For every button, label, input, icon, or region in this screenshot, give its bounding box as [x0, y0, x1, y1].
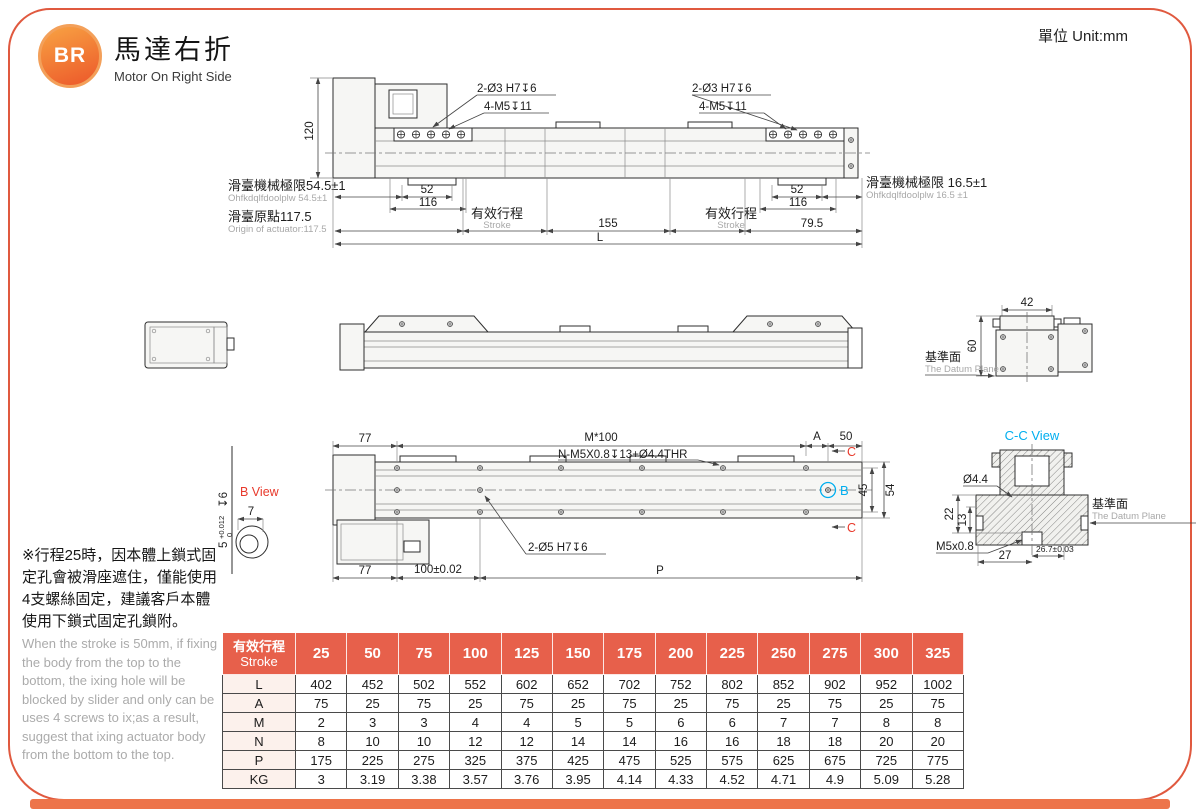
table-cell: 18 [758, 732, 809, 751]
table-cell: 4 [501, 713, 552, 732]
table-cell: 4 [450, 713, 501, 732]
dim-77-bottom: 77 [359, 565, 372, 577]
stroke-col-header: 225 [707, 633, 758, 675]
stroke-col-header: 50 [347, 633, 398, 675]
dim-50: 50 [840, 431, 853, 443]
table-cell: 375 [501, 751, 552, 770]
dim-13: 13 [957, 514, 969, 527]
dim-52-right: 52 [791, 184, 804, 196]
datum-side-zh: 基準面 [925, 349, 961, 364]
dim-L: L [597, 232, 604, 244]
stroke-col-header: 300 [861, 633, 912, 675]
stroke-col-header: 75 [398, 633, 449, 675]
dim-P: P [656, 565, 664, 577]
table-cell: 75 [296, 694, 347, 713]
cc-view-detail: C-C View Ø4.4 22 13 M5x0.8 [936, 428, 1196, 566]
table-cell: 3.57 [450, 770, 501, 789]
stroke-note: ※行程25時，因本體上鎖式固定孔會被滑座遮住，僅能使用4支螺絲固定，建議客戶本體… [22, 545, 220, 765]
table-cell: 5 [604, 713, 655, 732]
datum-cc-en: The Datum Plane [1092, 511, 1166, 522]
table-cell: 402 [296, 675, 347, 694]
table-cell: 8 [296, 732, 347, 751]
dim-5-depth: ↧6 [218, 492, 230, 508]
datasheet-page: BR 馬達右折 Motor On Right Side 單位 Unit:mm [0, 0, 1200, 809]
table-cell: 5 [552, 713, 603, 732]
end-section-view: 42 60 基準面 The Datum Plane [925, 297, 1092, 382]
origin-en: Origin of actuator:117.5 [228, 224, 327, 235]
spec-table: 有效行程 Stroke 2550751001251501752002252502… [222, 632, 964, 789]
stroke-note-en: When the stroke is 50mm, if fixing the b… [22, 635, 220, 765]
datum-side-en: The Datum Plane [925, 364, 999, 375]
table-cell: 952 [861, 675, 912, 694]
dowel-hole-callout: 2-Ø5 H7↧6 [528, 542, 588, 554]
table-cell: 75 [398, 694, 449, 713]
table-cell: 852 [758, 675, 809, 694]
table-cell: 3.19 [347, 770, 398, 789]
stroke-label-left-en: Stroke [483, 220, 510, 231]
table-cell: 3 [398, 713, 449, 732]
table-cell: 175 [296, 751, 347, 770]
table-row-a: A75257525752575257525752575 [223, 694, 964, 713]
table-cell: 18 [809, 732, 860, 751]
stroke-label-right-zh: 有效行程 [705, 206, 757, 221]
hole-callout-left-1: 2-Ø3 H7↧6 [477, 83, 537, 95]
stroke-col-header: 325 [912, 633, 964, 675]
dim-120: 120 [304, 121, 316, 140]
table-cell: 5.28 [912, 770, 964, 789]
dim-M100: M*100 [584, 432, 617, 444]
table-cell: 4.33 [655, 770, 706, 789]
thread-callout: N-M5X0.8↧13+Ø4.4THR [558, 449, 687, 461]
dim-52-left: 52 [421, 184, 434, 196]
table-cell: 3.95 [552, 770, 603, 789]
table-cell: 6 [707, 713, 758, 732]
table-cell: 3 [296, 770, 347, 789]
table-cell: 702 [604, 675, 655, 694]
table-cell: 75 [912, 694, 964, 713]
table-cell: 4.9 [809, 770, 860, 789]
row-label: A [223, 694, 296, 713]
b-view-detail: 7 B View 5 +0.012 0 ↧6 [217, 446, 280, 574]
row-label: M [223, 713, 296, 732]
table-cell: 325 [450, 751, 501, 770]
table-cell: 802 [707, 675, 758, 694]
dim-100: 100±0.02 [414, 564, 462, 576]
b-view-title: B View [240, 485, 280, 499]
hole-callout-left-2: 4-M5↧11 [484, 101, 532, 113]
table-cell: 225 [347, 751, 398, 770]
table-cell: 12 [501, 732, 552, 751]
dim-4-4: Ø4.4 [963, 474, 989, 486]
dim-42: 42 [1021, 297, 1034, 309]
table-row-p: P175225275325375425475525575625675725775 [223, 751, 964, 770]
dim-A: A [813, 431, 821, 443]
table-row-m: M2334455667788 [223, 713, 964, 732]
table-cell: 75 [604, 694, 655, 713]
table-cell: 775 [912, 751, 964, 770]
table-cell: 4.71 [758, 770, 809, 789]
dim-79-5: 79.5 [801, 218, 823, 230]
table-cell: 652 [552, 675, 603, 694]
table-cell: 25 [655, 694, 706, 713]
table-cell: 3 [347, 713, 398, 732]
table-cell: 2 [296, 713, 347, 732]
table-cell: 8 [861, 713, 912, 732]
table-cell: 16 [707, 732, 758, 751]
table-cell: 75 [809, 694, 860, 713]
table-cell: 7 [758, 713, 809, 732]
dim-45: 45 [858, 484, 870, 497]
stroke-label-left-zh: 有效行程 [471, 206, 523, 221]
dim-116-left: 116 [419, 197, 437, 209]
table-cell: 6 [655, 713, 706, 732]
table-cell: 16 [655, 732, 706, 751]
table-row-kg: KG33.193.383.573.763.954.144.334.524.714… [223, 770, 964, 789]
table-row-l: L402452502552602652702752802852902952100… [223, 675, 964, 694]
section-c-top: C [847, 445, 856, 459]
stroke-header-corner: 有效行程 Stroke [223, 633, 296, 675]
table-cell: 3.38 [398, 770, 449, 789]
table-cell: 8 [912, 713, 964, 732]
table-cell: 425 [552, 751, 603, 770]
dim-54: 54 [885, 483, 897, 496]
stroke-label-right-en: Stroke [717, 220, 744, 231]
mech-limit-left-zh: 滑臺機械極限54.5±1 [228, 178, 346, 193]
section-c-bottom: C [847, 521, 856, 535]
table-cell: 552 [450, 675, 501, 694]
table-cell: 602 [501, 675, 552, 694]
table-cell: 25 [552, 694, 603, 713]
table-cell: 1002 [912, 675, 964, 694]
dim-116-right: 116 [789, 197, 807, 209]
table-cell: 3.76 [501, 770, 552, 789]
stroke-col-header: 125 [501, 633, 552, 675]
hole-callout-right-2: 4-M5↧11 [699, 101, 747, 113]
table-cell: 75 [501, 694, 552, 713]
top-plan-view: 120 2-Ø3 H7↧6 4-M5↧11 2-Ø3 H7↧6 4-M5↧11 … [228, 78, 987, 248]
stroke-col-header: 250 [758, 633, 809, 675]
row-label: P [223, 751, 296, 770]
dim-5-tol-lower: 0 [225, 533, 234, 537]
dim-155: 155 [598, 218, 617, 230]
table-cell: 475 [604, 751, 655, 770]
stroke-col-header: 25 [296, 633, 347, 675]
dim-22: 22 [944, 508, 956, 521]
dim-26-7: 26.7±0.03 [1036, 544, 1074, 554]
table-cell: 10 [347, 732, 398, 751]
table-cell: 25 [861, 694, 912, 713]
dim-60: 60 [967, 340, 979, 353]
datum-cc-zh: 基準面 [1092, 496, 1128, 511]
table-cell: 275 [398, 751, 449, 770]
table-cell: 452 [347, 675, 398, 694]
stroke-header-en: Stroke [223, 654, 295, 669]
table-cell: 5.09 [861, 770, 912, 789]
dim-27: 27 [999, 550, 1012, 562]
table-cell: 675 [809, 751, 860, 770]
table-cell: 20 [861, 732, 912, 751]
dim-77-top: 77 [359, 433, 372, 445]
thread-m5: M5x0.8 [936, 541, 974, 553]
table-cell: 625 [758, 751, 809, 770]
table-cell: 25 [347, 694, 398, 713]
stroke-note-zh: ※行程25時，因本體上鎖式固定孔會被滑座遮住，僅能使用4支螺絲固定，建議客戶本體… [22, 545, 220, 633]
table-cell: 75 [707, 694, 758, 713]
table-cell: 502 [398, 675, 449, 694]
side-elevation-view [145, 316, 862, 370]
table-cell: 25 [758, 694, 809, 713]
cc-view-title: C-C View [1005, 428, 1060, 443]
table-cell: 20 [912, 732, 964, 751]
table-cell: 25 [450, 694, 501, 713]
stroke-col-header: 100 [450, 633, 501, 675]
row-label: L [223, 675, 296, 694]
bottom-plan-view: 77 M*100 A 50 N-M5X0.8↧13+Ø4.4THR C C B … [325, 431, 897, 582]
table-cell: 4.52 [707, 770, 758, 789]
stroke-col-header: 150 [552, 633, 603, 675]
mech-limit-right-en: Ohfkdqlfdoolplw 16.5 ±1 [866, 190, 968, 201]
table-cell: 752 [655, 675, 706, 694]
table-cell: 10 [398, 732, 449, 751]
table-cell: 4.14 [604, 770, 655, 789]
table-cell: 7 [809, 713, 860, 732]
mech-limit-right-zh: 滑臺機械極限 16.5±1 [866, 175, 987, 190]
dim-7: 7 [248, 506, 254, 518]
mech-limit-left-en: Ohfkdqlfdoolplw 54.5±1 [228, 193, 327, 204]
stroke-header-row: 有效行程 Stroke 2550751001251501752002252502… [223, 633, 964, 675]
table-row-n: N8101012121414161618182020 [223, 732, 964, 751]
stroke-header-zh: 有效行程 [223, 639, 295, 654]
table-cell: 525 [655, 751, 706, 770]
stroke-col-header: 175 [604, 633, 655, 675]
table-cell: 14 [604, 732, 655, 751]
row-label: N [223, 732, 296, 751]
stroke-col-header: 275 [809, 633, 860, 675]
hole-callout-right-1: 2-Ø3 H7↧6 [692, 83, 752, 95]
origin-zh: 滑臺原點117.5 [228, 209, 312, 224]
stroke-col-header: 200 [655, 633, 706, 675]
table-cell: 902 [809, 675, 860, 694]
table-cell: 12 [450, 732, 501, 751]
table-cell: 575 [707, 751, 758, 770]
table-cell: 725 [861, 751, 912, 770]
row-label: KG [223, 770, 296, 789]
table-cell: 14 [552, 732, 603, 751]
section-b-marker: B [840, 483, 849, 498]
